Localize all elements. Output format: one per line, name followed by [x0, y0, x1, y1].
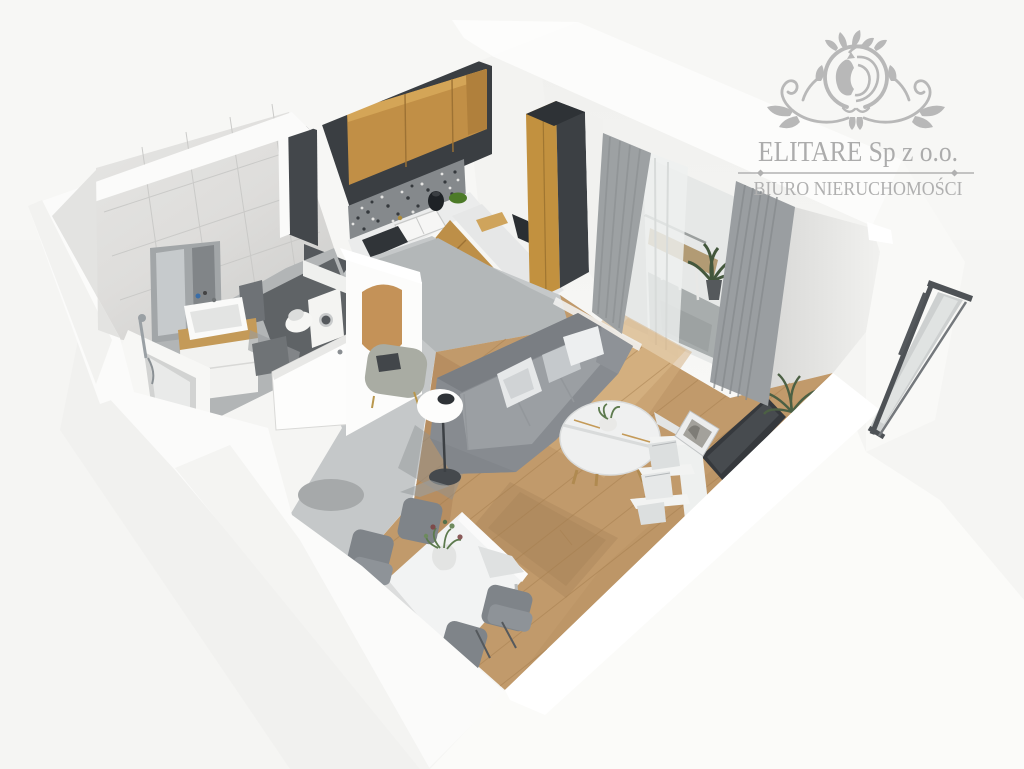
svg-text:BIURO NIERUCHOMOŚCI: BIURO NIERUCHOMOŚCI — [754, 176, 963, 200]
svg-text:ELITARE Sp z o.o.: ELITARE Sp z o.o. — [758, 137, 958, 168]
